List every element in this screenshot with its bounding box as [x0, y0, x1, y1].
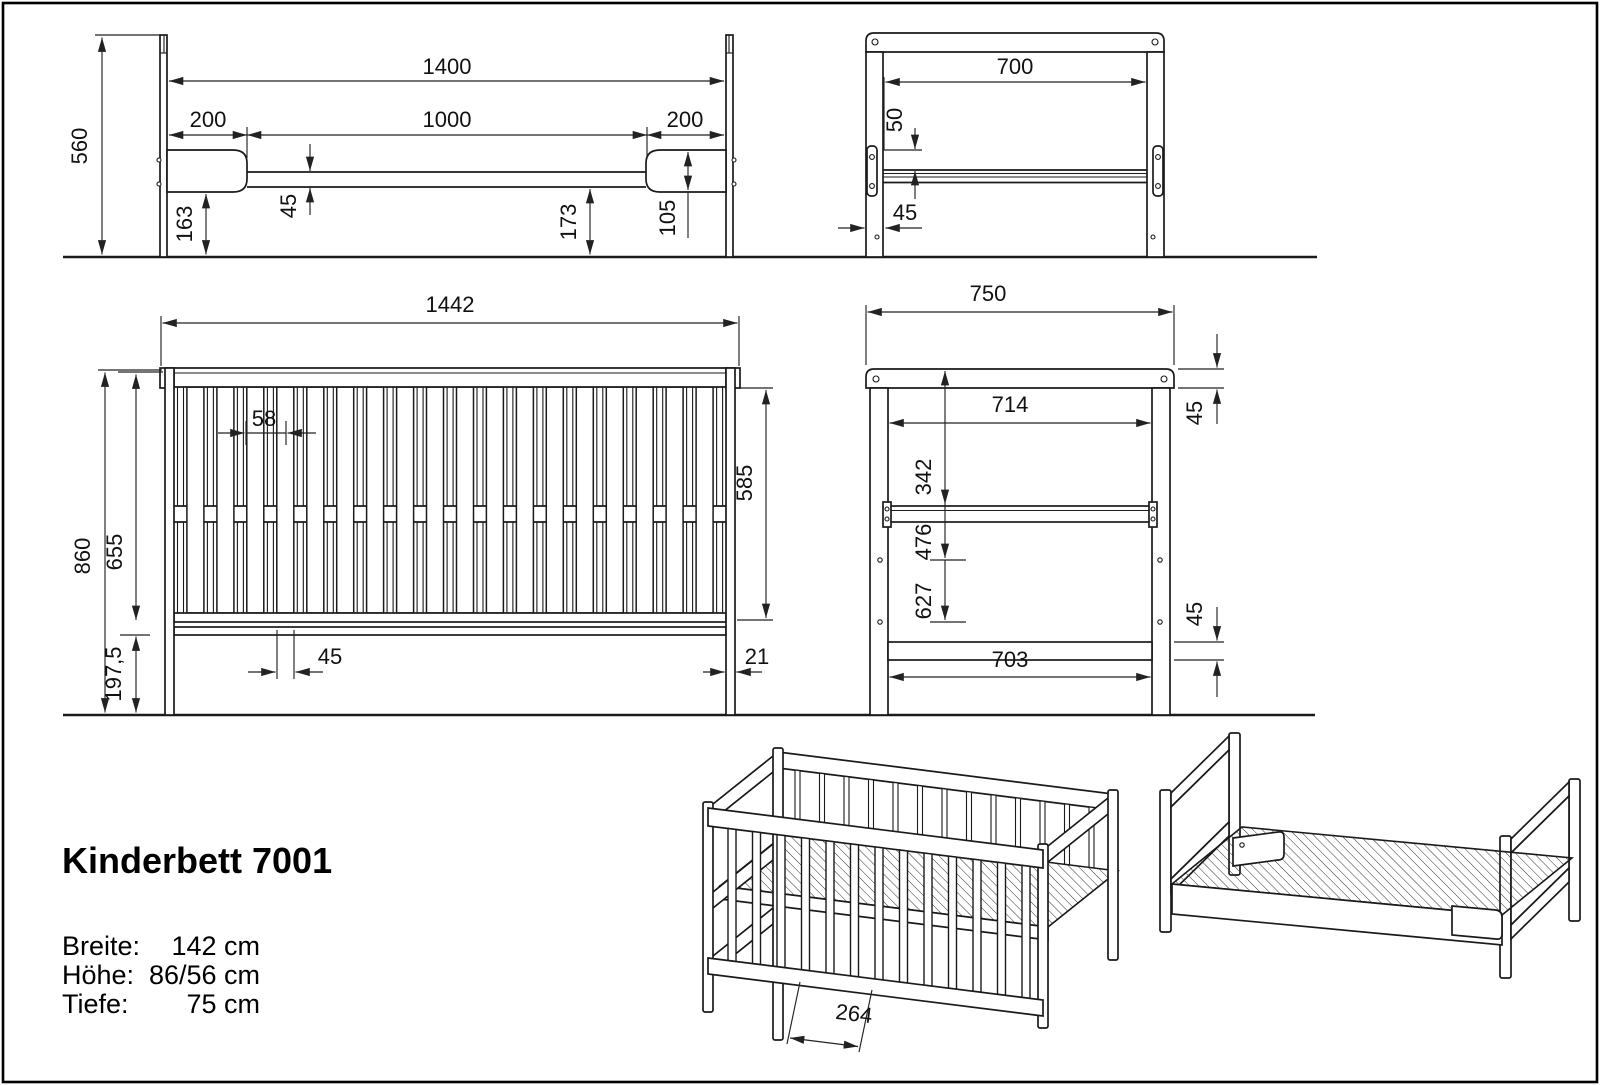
dim-bottom-rail-height: 45	[1182, 602, 1207, 626]
dim-panel-height: 655	[102, 534, 127, 571]
spec-value: 86/56 cm	[149, 961, 260, 990]
view-bed-end-elevation: 700 50 45	[838, 33, 1164, 257]
dim-rail-thickness: 45	[276, 194, 301, 218]
caption-block: Kinderbett 7001 Breite: 142 cm Höhe: 86/…	[62, 840, 362, 1019]
dim-inner-width: 1400	[423, 54, 472, 79]
dim-platform-from-top: 342	[911, 459, 936, 496]
dim-rail-to-floor: 173	[556, 204, 581, 241]
dim-side-height: 585	[732, 465, 757, 502]
view-toddler-bed-isometric	[1160, 733, 1580, 978]
dim-iso-slat-pitch: 264	[834, 999, 873, 1028]
spec-label: Höhe:	[62, 961, 134, 990]
spec-value: 142 cm	[171, 932, 260, 961]
spec-label: Breite:	[62, 932, 140, 961]
spec-value: 75 cm	[186, 990, 260, 1019]
spec-label: Tiefe:	[62, 990, 129, 1019]
spec-row-breite: Breite: 142 cm	[62, 932, 260, 961]
dim-crib-total-height: 860	[70, 538, 95, 575]
dim-post-width: 21	[745, 644, 769, 669]
dim-slat-pitch: 58	[252, 406, 276, 431]
spec-list: Breite: 142 cm Höhe: 86/56 cm Tiefe: 75 …	[62, 932, 260, 1019]
dim-bottom-inner-depth: 703	[992, 647, 1029, 672]
dim-rail-drop: 50	[882, 108, 907, 132]
dim-base-to-floor: 197,5	[101, 646, 126, 701]
dim-left-section: 200	[190, 107, 227, 132]
dim-bracket-height: 105	[655, 200, 680, 237]
dim-total-height: 560	[67, 128, 92, 165]
dim-total-depth: 750	[970, 281, 1007, 306]
dim-post-depth: 45	[893, 200, 917, 225]
dim-bracket-to-floor: 163	[172, 206, 197, 243]
dim-right-section: 200	[667, 107, 704, 132]
dim-cap-height: 45	[1182, 401, 1207, 425]
dim-mid-hole-from-top: 476	[911, 524, 936, 561]
view-crib-side-elevation: 750 714 342 476 627 703 45 45	[866, 281, 1224, 715]
view-bed-side-elevation: 560 1400 200 1000 200 163 45 173 105	[67, 35, 736, 257]
spec-row-hoehe: Höhe: 86/56 cm	[62, 961, 260, 990]
dim-inner-depth: 714	[992, 392, 1029, 417]
spec-row-tiefe: Tiefe: 75 cm	[62, 990, 260, 1019]
dim-crib-total-width: 1442	[426, 292, 475, 317]
view-crib-front-elevation: 1442 58 860 655 197,5 585 45 21	[70, 292, 773, 715]
view-crib-isometric: 264	[703, 748, 1118, 1052]
drawing-sheet: 560 1400 200 1000 200 163 45 173 105	[0, 0, 1600, 1085]
product-title: Kinderbett 7001	[62, 840, 362, 882]
dim-end-inner-width: 700	[997, 54, 1034, 79]
dim-slat-width: 45	[318, 644, 342, 669]
dim-middle-section: 1000	[423, 107, 472, 132]
dim-low-hole-from-top: 627	[911, 583, 936, 620]
